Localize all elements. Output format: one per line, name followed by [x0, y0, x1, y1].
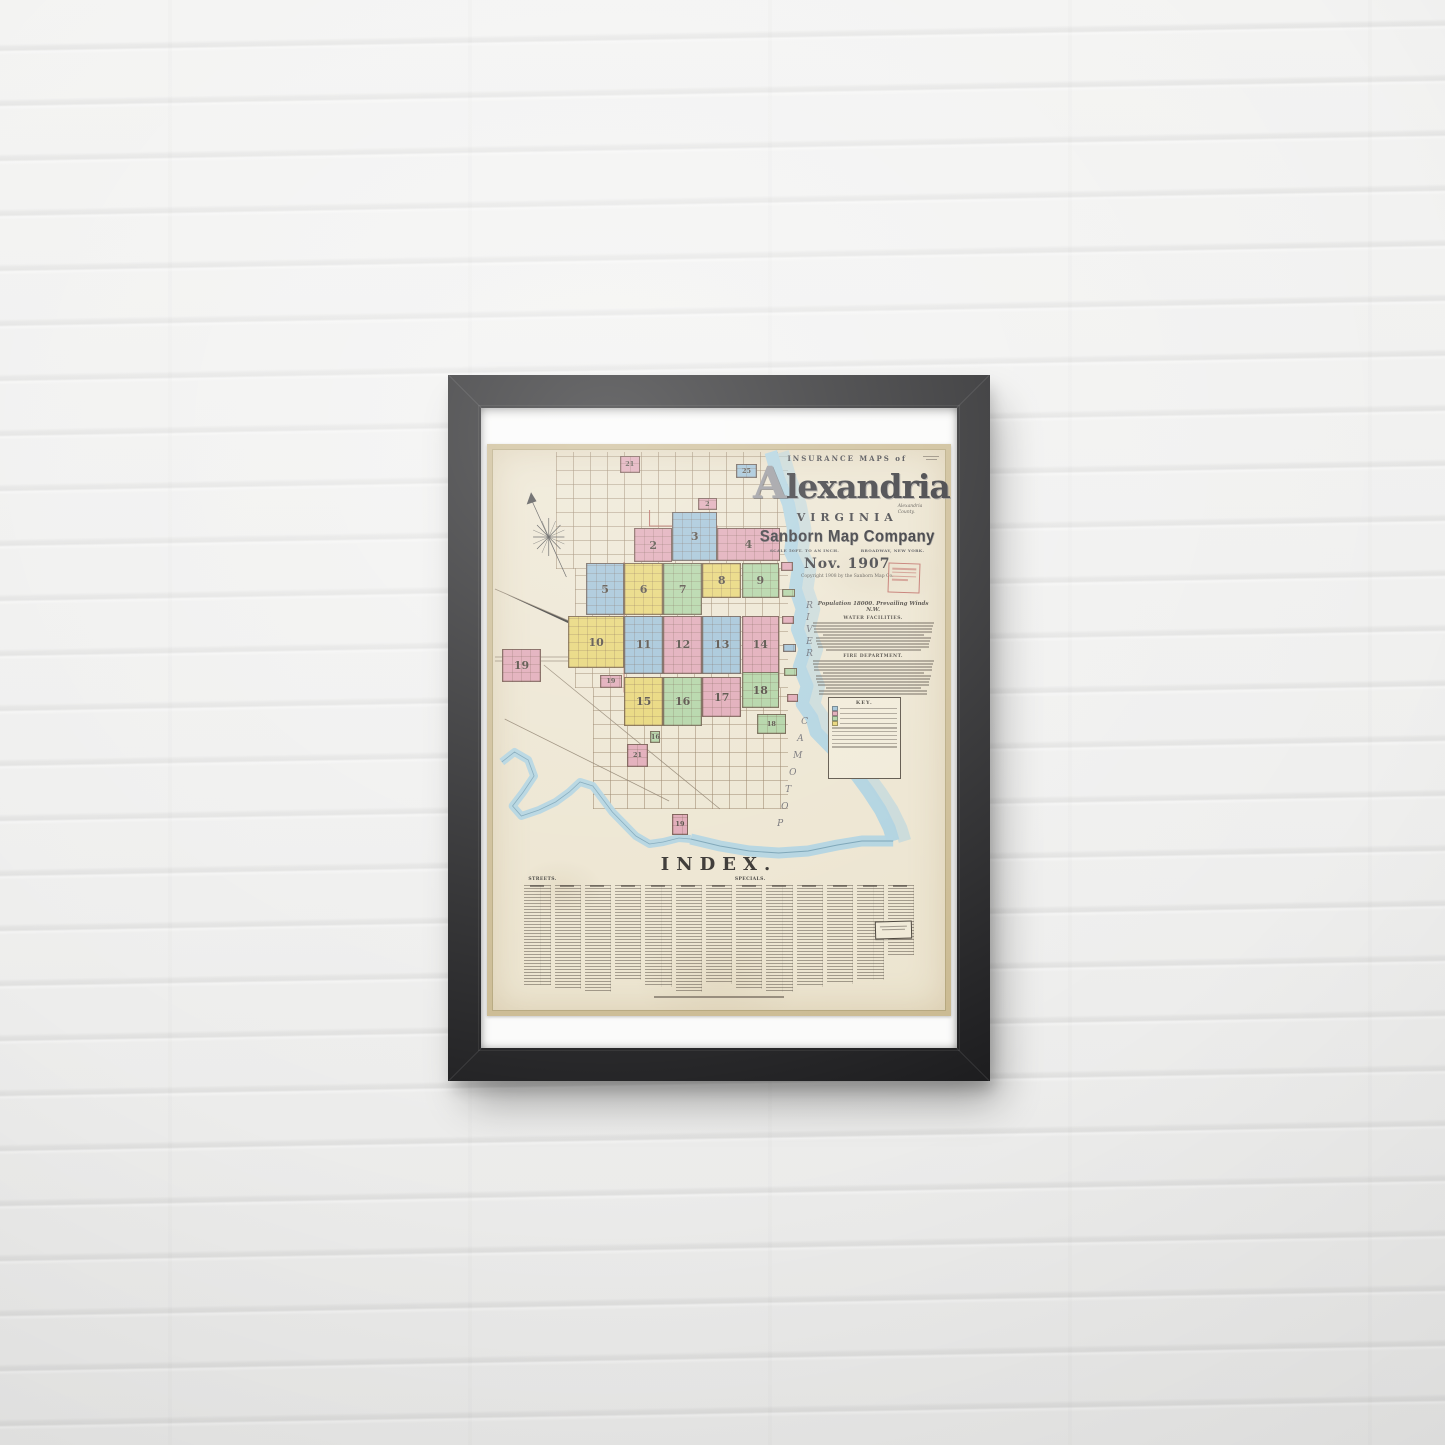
light-vignette: [0, 0, 1445, 1445]
brick-wall: 2125232456789101112131419191516171818162…: [0, 0, 1445, 1445]
